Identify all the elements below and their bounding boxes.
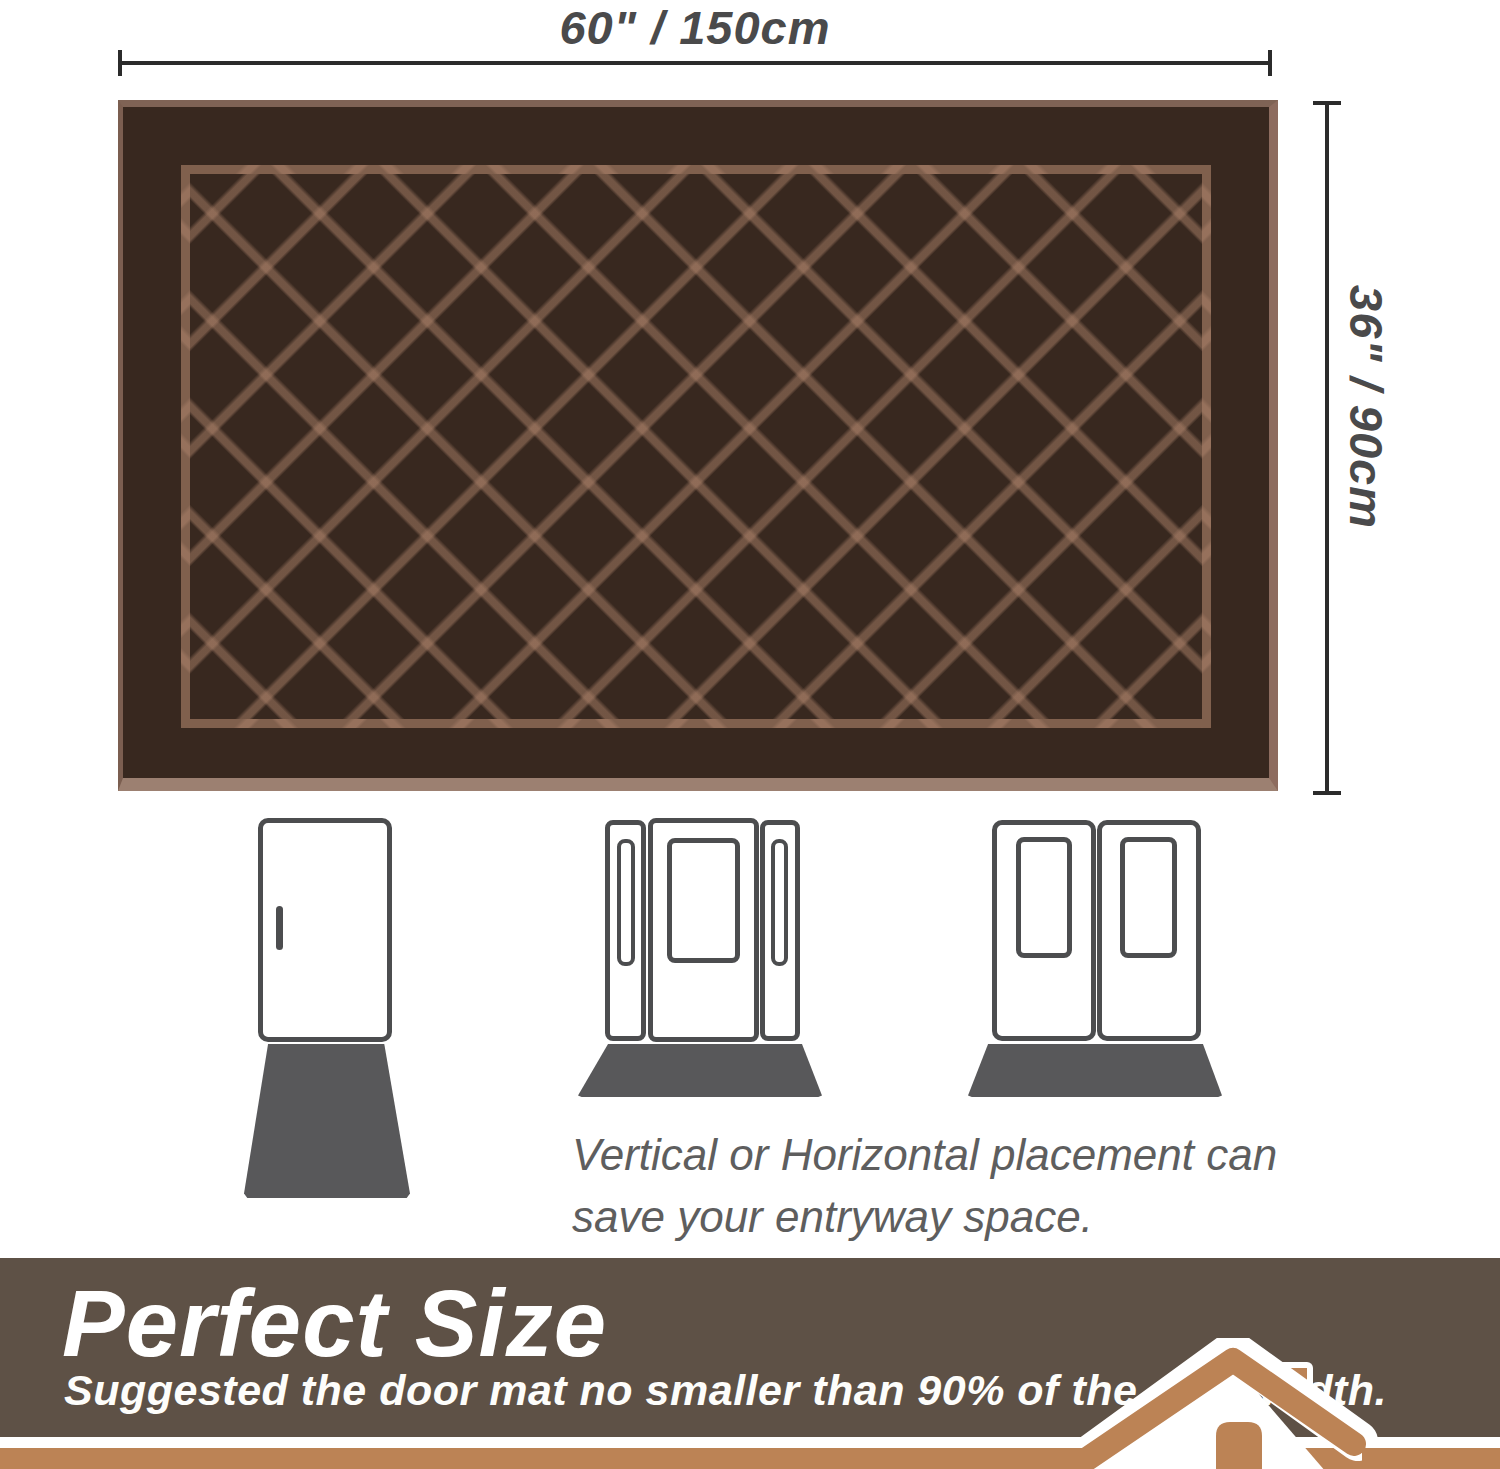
door-window-icon (667, 838, 740, 963)
height-dimension-line (1325, 101, 1329, 795)
width-dimension-label: 60" / 150cm (118, 0, 1272, 55)
double-door-left-icon (992, 820, 1096, 1041)
double-door-right-icon (1097, 820, 1201, 1041)
sidelight-left-icon (605, 820, 646, 1041)
dimension-end-cap (1268, 50, 1272, 76)
width-dimension-line (118, 61, 1272, 65)
height-dimension-label: 36" / 90cm (1340, 157, 1394, 657)
house-icon (1040, 1338, 1400, 1469)
doormat-size-infographic: 60" / 150cm 36" / 90cm Vertical or Horiz… (0, 0, 1500, 1469)
diamond-lattice-pattern (181, 165, 1211, 728)
single-door-icon (258, 818, 392, 1042)
placement-caption: Vertical or Horizontal placement can sav… (572, 1124, 1277, 1248)
sidelight-right-icon (760, 820, 800, 1041)
sidelight-window-icon (771, 839, 788, 966)
caption-line: save your entryway space. (572, 1186, 1277, 1248)
doormat-image (118, 100, 1278, 791)
sidelight-door-icon (648, 818, 759, 1042)
dimension-end-cap (1313, 101, 1341, 105)
dimension-end-cap (1313, 791, 1341, 795)
sidelight-window-icon (617, 839, 635, 966)
vertical-mat-icon (244, 1044, 410, 1198)
dimension-end-cap (118, 50, 122, 76)
banner-title: Perfect Size (62, 1270, 607, 1378)
door-window-icon (1120, 837, 1177, 958)
horizontal-mat-icon (578, 1044, 822, 1097)
door-handle-icon (276, 906, 283, 950)
caption-line: Vertical or Horizontal placement can (572, 1124, 1277, 1186)
house-door-icon (1216, 1422, 1262, 1469)
door-window-icon (1016, 837, 1072, 958)
horizontal-mat-icon (968, 1044, 1222, 1097)
